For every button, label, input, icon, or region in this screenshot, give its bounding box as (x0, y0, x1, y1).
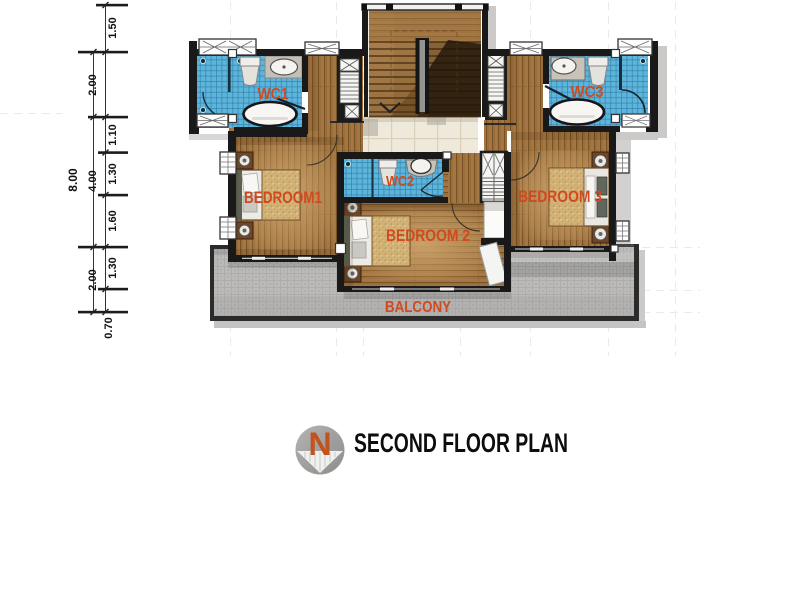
svg-text:BEDROOM1: BEDROOM1 (244, 188, 322, 207)
svg-text:N: N (308, 426, 331, 462)
svg-text:BEDROOM 3: BEDROOM 3 (518, 187, 602, 206)
svg-text:0.70: 0.70 (103, 317, 115, 338)
svg-text:2.00: 2.00 (87, 269, 99, 290)
svg-text:WC3: WC3 (571, 84, 604, 101)
svg-text:4.00: 4.00 (87, 170, 99, 191)
svg-text:BALCONY: BALCONY (385, 299, 451, 316)
svg-text:BEDROOM 2: BEDROOM 2 (386, 226, 470, 245)
svg-text:1.10: 1.10 (107, 124, 119, 145)
svg-text:WC1: WC1 (258, 86, 289, 103)
svg-text:SECOND FLOOR PLAN: SECOND FLOOR PLAN (354, 428, 568, 458)
svg-text:WC2: WC2 (386, 173, 414, 190)
svg-text:1.50: 1.50 (107, 17, 119, 38)
svg-text:2.00: 2.00 (87, 74, 99, 95)
svg-text:1.60: 1.60 (107, 210, 119, 231)
svg-text:1.30: 1.30 (107, 163, 119, 184)
svg-text:8.00: 8.00 (66, 168, 80, 192)
svg-text:1.30: 1.30 (107, 257, 119, 278)
